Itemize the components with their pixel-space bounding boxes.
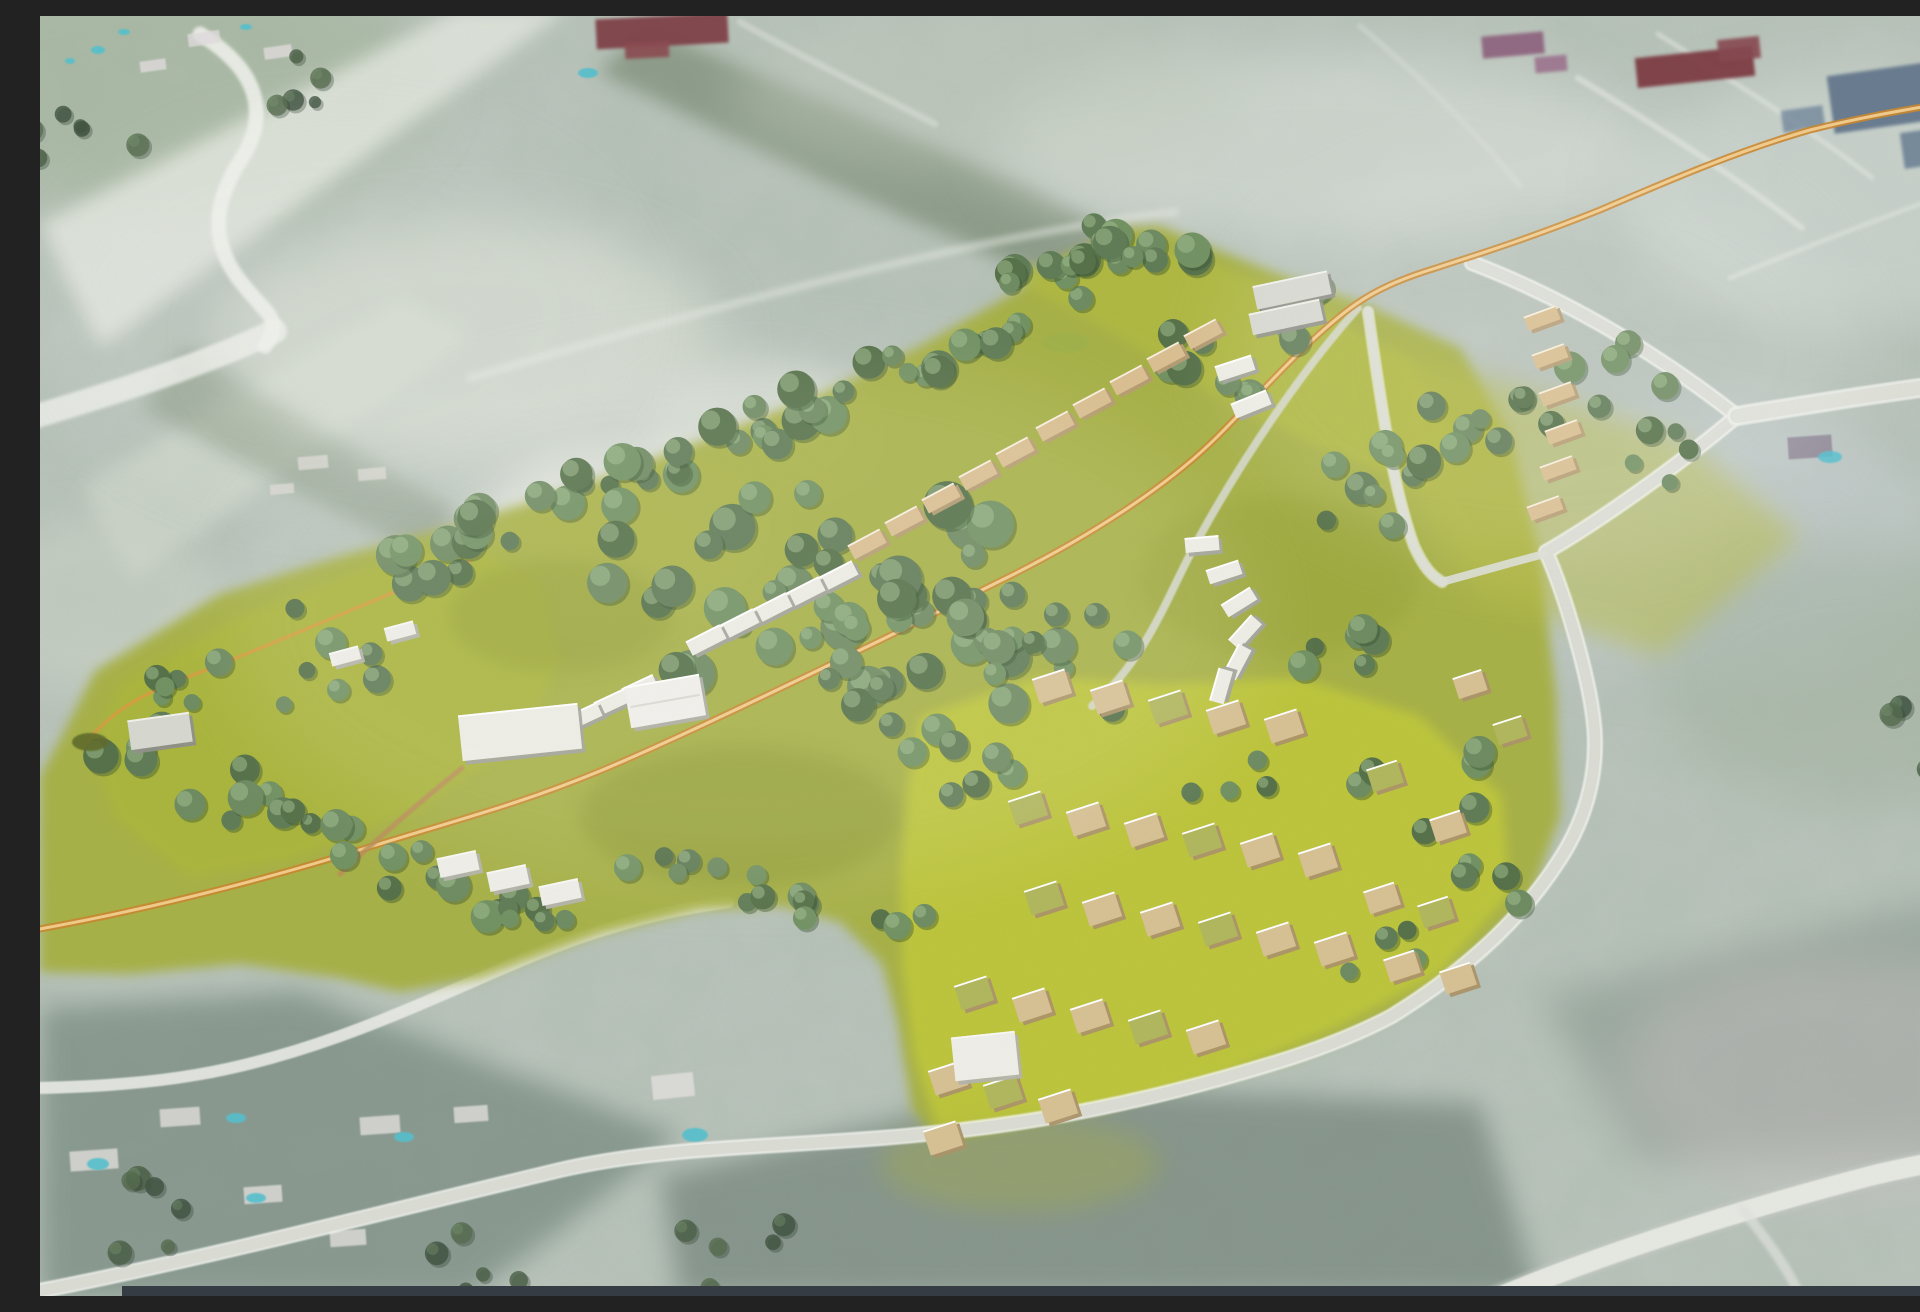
swimming-pool	[682, 1128, 708, 1142]
tree-highlight	[886, 914, 900, 928]
tree-highlight	[1258, 778, 1268, 788]
tree-highlight	[1466, 738, 1482, 754]
tree-highlight	[1138, 232, 1153, 247]
tree-highlight	[1177, 235, 1195, 253]
tree-highlight	[207, 650, 221, 664]
tree-highlight	[427, 867, 439, 879]
tree	[121, 1171, 140, 1190]
tree-highlight	[177, 791, 193, 807]
tree-highlight	[128, 135, 140, 147]
tree-highlight	[951, 331, 967, 347]
aerial-building	[1717, 36, 1761, 62]
tree-highlight	[232, 757, 247, 772]
aerial-building	[453, 1105, 488, 1123]
tree-highlight	[1377, 928, 1389, 940]
swimming-pool	[394, 1132, 414, 1142]
tree-highlight	[535, 912, 546, 923]
swimming-pool	[246, 1193, 266, 1203]
tree	[1248, 751, 1267, 770]
tree	[309, 96, 321, 108]
tree	[1220, 781, 1239, 800]
tree-highlight	[381, 845, 395, 859]
building-roof	[951, 1031, 1019, 1081]
tree-highlight	[1356, 656, 1367, 667]
aerial-building	[625, 41, 670, 59]
tree-highlight	[1095, 228, 1112, 245]
tree-highlight	[794, 892, 805, 903]
tree-highlight	[473, 902, 490, 919]
tree-highlight	[774, 1215, 786, 1227]
tree-highlight	[1461, 795, 1476, 810]
tree-highlight	[676, 1221, 687, 1232]
tree-highlight	[914, 906, 926, 918]
haze-patch	[40, 116, 640, 516]
tree	[1181, 782, 1201, 802]
tree-highlight	[427, 1243, 439, 1255]
swimming-pool	[118, 29, 130, 35]
tree-highlight	[323, 811, 339, 827]
tree-highlight	[1039, 253, 1053, 267]
haze-patch	[72, 733, 108, 751]
aerial-building	[1534, 55, 1567, 74]
swimming-pool	[65, 58, 75, 64]
tree-highlight	[1001, 274, 1011, 284]
aerial-building	[651, 1072, 695, 1100]
tree	[74, 121, 90, 137]
tree-highlight	[230, 783, 248, 801]
tree-highlight	[412, 842, 423, 853]
tree-highlight	[1881, 705, 1893, 717]
tree-highlight	[1071, 250, 1084, 263]
tree-highlight	[1350, 616, 1365, 631]
tree-highlight	[752, 886, 765, 899]
tree	[184, 694, 201, 711]
tree	[476, 1267, 490, 1281]
tree	[145, 1177, 164, 1196]
swimming-pool	[87, 1158, 109, 1170]
tree-highlight	[379, 877, 391, 889]
tree-highlight	[452, 1224, 463, 1235]
tree	[55, 106, 72, 123]
tree-highlight	[1414, 820, 1427, 833]
tree	[155, 677, 174, 696]
tree-highlight	[1453, 864, 1466, 877]
tree-highlight	[982, 330, 998, 346]
tree-highlight	[1290, 652, 1305, 667]
tree-highlight	[332, 843, 346, 857]
tree-highlight	[312, 69, 323, 80]
terrain-patch	[730, 16, 1250, 176]
layer-letterbox	[122, 1286, 1920, 1296]
tree-highlight	[109, 1242, 121, 1254]
tree	[765, 1234, 781, 1250]
tree	[1398, 921, 1417, 940]
swimming-pool	[240, 24, 252, 30]
tree-highlight	[1083, 215, 1095, 227]
swimming-pool	[578, 68, 598, 78]
tree-highlight	[884, 347, 894, 357]
letterbox-bar	[122, 1286, 1920, 1296]
masterplan-aerial-view	[40, 16, 1920, 1296]
swimming-pool	[91, 46, 105, 54]
tree-highlight	[1507, 892, 1521, 906]
aerial-building	[159, 1107, 200, 1128]
tree	[1340, 963, 1358, 981]
swimming-pool	[226, 1113, 246, 1123]
tree-highlight	[527, 899, 539, 911]
aerial-building	[359, 1115, 400, 1136]
tree-highlight	[146, 667, 159, 680]
tree	[555, 910, 574, 929]
tree	[709, 1238, 727, 1256]
tree-highlight	[282, 800, 294, 812]
tree	[161, 1239, 175, 1253]
masterplan-render-canvas	[40, 16, 1920, 1296]
tree	[501, 910, 519, 928]
tree-highlight	[795, 908, 807, 920]
tree-highlight	[1348, 773, 1361, 786]
tree-highlight	[1124, 247, 1135, 258]
haze-patch	[1220, 146, 1860, 566]
tree-highlight	[1160, 321, 1175, 336]
building-villa	[951, 1030, 1023, 1085]
tree	[289, 49, 303, 63]
tree-highlight	[1494, 864, 1508, 878]
tree-highlight	[172, 1200, 182, 1210]
tree-highlight	[1144, 249, 1157, 262]
tree-highlight	[268, 96, 279, 107]
